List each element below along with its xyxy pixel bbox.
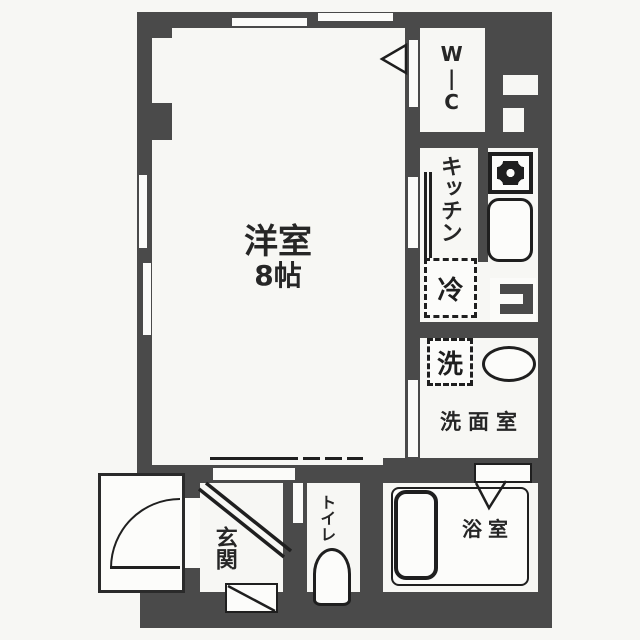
counter-end-right — [523, 284, 533, 314]
wic-door-opening — [409, 40, 418, 107]
entrance-step-box — [225, 583, 278, 613]
wall-toilet-bath — [360, 483, 383, 593]
main-room-name: 洋室 — [244, 224, 312, 261]
genkan-door-opening — [213, 468, 295, 480]
duct-bracket-v — [524, 95, 538, 132]
window-top-right — [318, 13, 393, 21]
bathroom-label: 浴室 — [462, 519, 514, 541]
wall-corner-block — [137, 12, 172, 38]
wic-door-triangle-icon — [382, 45, 406, 73]
toilet-door-opening — [293, 483, 303, 523]
hall-boundary-dash — [303, 457, 320, 460]
hall-boundary-dash — [347, 457, 363, 460]
kitchen-counter-line — [424, 172, 427, 268]
floor-plan: 冷 洗 洋室 8帖 W|C キッチン 洗面室 浴室 トイレ 玄関 — [0, 0, 640, 640]
hall-boundary-line — [210, 457, 298, 460]
refrigerator-label: 冷 — [437, 270, 463, 307]
wall-wic-right — [485, 28, 503, 148]
wic-label: W|C — [440, 42, 462, 114]
kitchen-counter-line — [429, 172, 432, 268]
washbasin — [482, 346, 536, 382]
window-left-upper — [139, 175, 147, 248]
toilet-bowl — [313, 548, 351, 606]
entrance-label: 玄関 — [212, 526, 236, 570]
entrance-door-leaf — [110, 566, 180, 569]
main-room-label: 洋室 8帖 — [228, 224, 328, 291]
washing-machine-label: 洗 — [437, 344, 463, 381]
kitchen-sink — [487, 198, 533, 262]
hall-boundary-dash — [325, 457, 342, 460]
wall-pilaster — [152, 103, 172, 140]
main-room-size: 8帖 — [254, 261, 301, 291]
refrigerator-space: 冷 — [424, 258, 477, 318]
washroom-door-opening — [408, 380, 418, 457]
window-left-lower — [143, 263, 151, 335]
bath-door-opening — [474, 463, 532, 483]
washing-machine-space: 洗 — [427, 338, 473, 386]
wall-duct-block — [503, 28, 538, 75]
bathtub — [394, 490, 438, 580]
toilet-label: トイレ — [318, 494, 335, 542]
stove-icon — [488, 152, 533, 194]
stove-burner-icon — [497, 161, 524, 185]
wall-wic-bottom — [405, 132, 552, 148]
kitchen-opening — [408, 177, 418, 248]
washroom-label: 洗面室 — [440, 411, 524, 434]
wall-right — [538, 12, 552, 628]
window-top-left — [232, 18, 307, 26]
kitchen-label: キッチン — [437, 155, 461, 243]
wall-kitchen-washroom — [405, 322, 552, 338]
